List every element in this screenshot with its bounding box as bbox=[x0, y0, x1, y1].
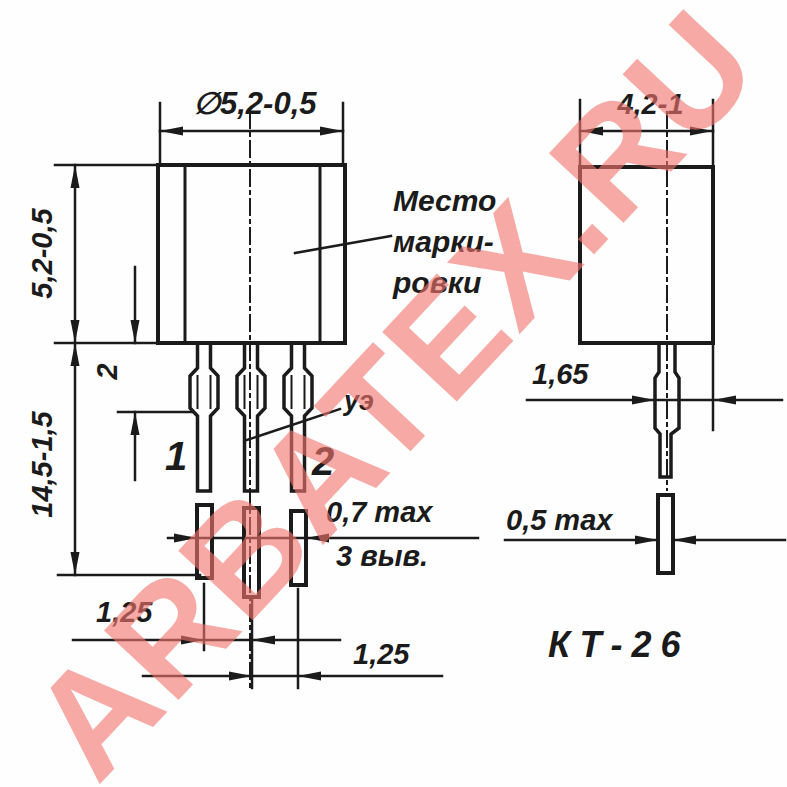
package-name: КТ-26 bbox=[548, 624, 690, 666]
marking-note-line1: Место bbox=[393, 180, 496, 221]
leads-count-note: 3 выв. bbox=[336, 542, 428, 571]
dim-body-height-label: 5,2-0,5 bbox=[28, 198, 57, 310]
dim-total-length-label: 14,5-1,5 bbox=[28, 398, 57, 532]
marking-note-line3: ровки bbox=[393, 262, 496, 303]
dim-lead-thickness-label: 0,5 max bbox=[506, 506, 612, 535]
dim-diameter-label: ∅5,2-0,5 bbox=[175, 88, 335, 119]
dim-lead-width-label: 0,7 max bbox=[326, 498, 432, 527]
dim-depth-label: 4,2-1 bbox=[598, 90, 703, 119]
lead2-number: 2 bbox=[312, 441, 334, 481]
dim-pitch-right-label: 1,25 bbox=[353, 640, 409, 669]
lead1-number: 1 bbox=[165, 436, 187, 476]
technical-drawing: ∅5,2-0,5 4,2-1 5,2-0,5 2 14,5-1,5 Место … bbox=[0, 0, 787, 787]
marking-note-line2: марки- bbox=[393, 221, 496, 262]
dim-lead-offset-label: 1,65 bbox=[532, 360, 588, 389]
marking-place-note: Место марки- ровки bbox=[393, 180, 496, 303]
dim-shoulder-label: 2 bbox=[93, 357, 122, 387]
side-view-body bbox=[580, 112, 713, 490]
dim-pitch-left-label: 1,25 bbox=[96, 598, 152, 627]
emitter-lead-label: уэ bbox=[344, 388, 374, 415]
